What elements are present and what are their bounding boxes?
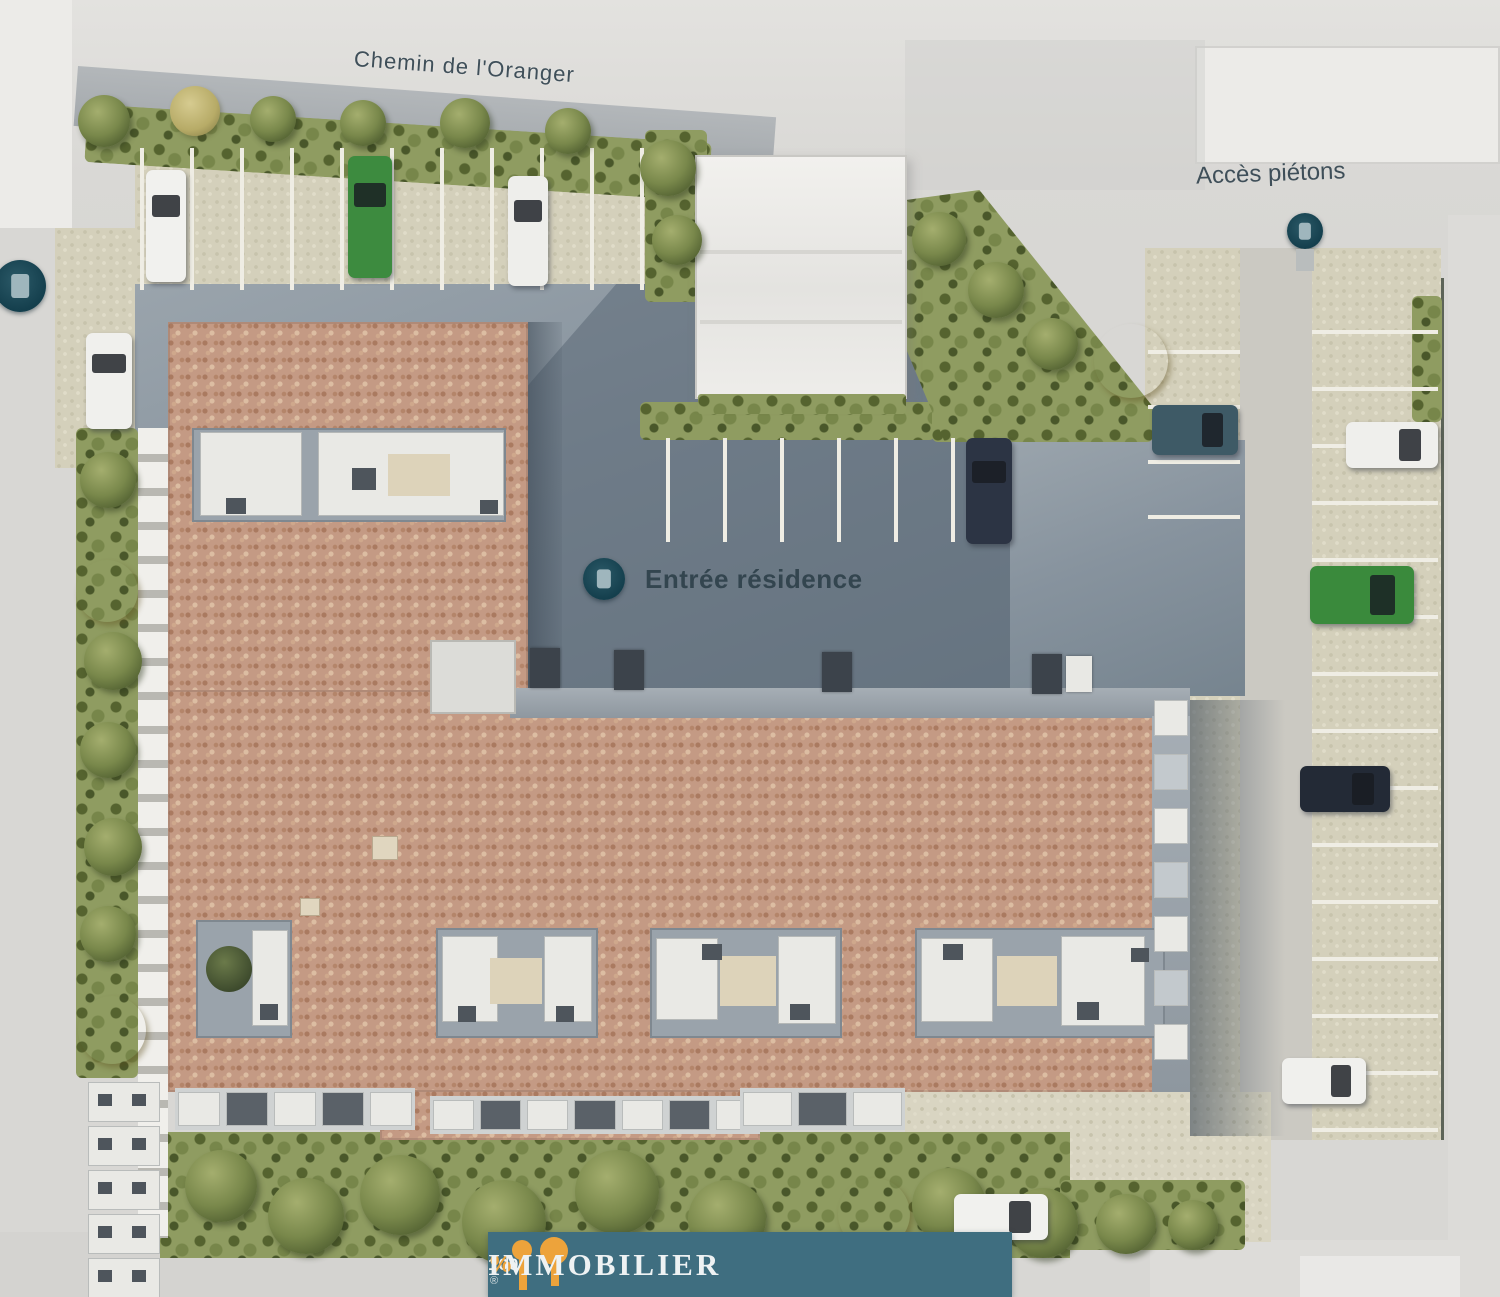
logo-name: IMMOBILIER — [488, 1247, 721, 1283]
green-tree — [1168, 1200, 1218, 1250]
car-green-top — [348, 156, 392, 278]
terrace-door — [132, 1094, 146, 1106]
terrace-door — [98, 1138, 112, 1150]
entrance-door-icon — [11, 274, 29, 298]
green-tree — [84, 632, 142, 690]
stall-line-right — [1312, 1128, 1438, 1132]
stall-line-center — [780, 438, 784, 542]
stall-line-top — [490, 148, 494, 290]
car-green-right — [1310, 566, 1414, 624]
stall-line-right — [1312, 330, 1438, 334]
south-terrace-cell — [622, 1100, 663, 1130]
terrace-door — [132, 1138, 146, 1150]
green-tree — [1026, 318, 1078, 370]
yellow-tree — [76, 560, 138, 622]
stall-line-right — [1312, 558, 1438, 562]
car-windshield — [1370, 575, 1395, 614]
car-windshield — [972, 461, 1005, 482]
car-windshield — [1202, 413, 1223, 447]
context-car-park-bottom-right — [1300, 1256, 1460, 1297]
south-terrace-cell — [322, 1092, 364, 1126]
site-plan-scene: Chemin de l'Oranger Accès piétons Entrée… — [0, 0, 1500, 1297]
terrace-door — [132, 1182, 146, 1194]
pedestrian-path-stub — [1296, 249, 1314, 271]
existing-building-ridge-1 — [700, 250, 902, 254]
green-tree — [440, 98, 490, 148]
north-wing-shadow — [528, 322, 562, 696]
inner-courtyard — [436, 928, 598, 1038]
car-windshield — [1352, 773, 1374, 804]
car-windshield — [1331, 1065, 1351, 1096]
west-terrace-cell — [88, 1082, 160, 1122]
car-white-top-1 — [146, 170, 186, 282]
residence-entrance-label: Entrée résidence — [645, 564, 863, 595]
stall-line-right-inner — [1148, 460, 1240, 464]
south-terrace-cell — [274, 1092, 316, 1126]
courtyard-dark — [702, 944, 722, 960]
pedestrian-access-marker — [1287, 213, 1323, 249]
south-terrace-cell — [527, 1100, 568, 1130]
south-slab-parapet — [510, 688, 1190, 718]
yellow-tree — [1094, 324, 1168, 398]
west-terrace-cell — [88, 1126, 160, 1166]
car-teal-right — [1152, 405, 1238, 455]
stall-line-center — [837, 438, 841, 542]
inner-courtyard — [915, 928, 1165, 1038]
green-tree — [340, 100, 386, 146]
east-balcony-cell — [1154, 1024, 1188, 1060]
terrace-door — [98, 1094, 112, 1106]
south-terrace-cell — [370, 1092, 412, 1126]
stall-line-center — [951, 438, 955, 542]
car-navy-center — [966, 438, 1012, 544]
yellow-tree — [78, 996, 146, 1064]
stall-line-top — [240, 148, 244, 290]
pedestrian-access-label: Accès piétons — [1196, 157, 1346, 190]
entrance-door-icon — [597, 569, 611, 588]
green-tree — [84, 818, 142, 876]
east-balcony-cell — [1154, 916, 1188, 952]
green-tree — [185, 1150, 257, 1222]
stall-line-right — [1312, 900, 1438, 904]
green-tree — [78, 95, 130, 147]
car-white-left — [86, 333, 132, 429]
car-white-right-top — [1346, 422, 1438, 468]
courtyard-dark — [556, 1006, 574, 1022]
terrace-door — [132, 1226, 146, 1238]
courtyard-dark — [260, 1004, 278, 1020]
stall-line-top — [590, 148, 594, 290]
courtyard-beige — [997, 956, 1057, 1006]
context-building-top-left — [0, 0, 72, 228]
inner-courtyard — [196, 920, 292, 1038]
stall-line-right — [1312, 1014, 1438, 1018]
roof-vent — [300, 898, 320, 916]
south-terrace-cell — [669, 1100, 710, 1130]
car-windshield — [92, 354, 125, 373]
terrace-door — [98, 1270, 112, 1282]
terrace-door — [98, 1182, 112, 1194]
east-balcony-cell — [1154, 754, 1188, 790]
stall-line-right — [1312, 843, 1438, 847]
courtyard-dark — [226, 498, 246, 514]
terrace-door — [98, 1226, 112, 1238]
green-tree — [80, 906, 136, 962]
courtyard-white — [200, 432, 302, 516]
green-tree — [80, 452, 136, 508]
courtyard-beige — [388, 454, 450, 496]
logo-registered-mark: ® — [490, 1275, 498, 1297]
west-terrace-cell — [88, 1258, 160, 1297]
car-windshield — [354, 183, 386, 207]
stall-line-top — [190, 148, 194, 290]
garage-door — [530, 648, 560, 688]
green-tree — [545, 108, 591, 154]
west-terrace-cell — [88, 1170, 160, 1210]
south-terrace-strip — [740, 1088, 905, 1130]
green-tree — [360, 1155, 440, 1235]
south-terrace-strip — [175, 1088, 415, 1130]
east-balcony-cell — [1154, 808, 1188, 844]
stall-line-top — [290, 148, 294, 290]
garage-door — [822, 652, 852, 692]
hedge-right-top — [1412, 296, 1442, 422]
stall-line-center — [723, 438, 727, 542]
green-tree — [170, 86, 220, 136]
car-dark-right — [1300, 766, 1390, 812]
car-windshield — [152, 195, 181, 217]
green-tree — [250, 96, 296, 142]
stall-line-center — [666, 438, 670, 542]
existing-building-ridge-2 — [700, 320, 902, 324]
garage-door — [1032, 654, 1062, 694]
stall-line-right — [1312, 672, 1438, 676]
south-terrace-cell — [798, 1092, 847, 1126]
stall-line-right — [1312, 387, 1438, 391]
car-windshield — [1009, 1201, 1032, 1232]
green-tree — [968, 262, 1024, 318]
entrance-door-icon — [1299, 223, 1311, 240]
context-road-top-right — [905, 40, 1205, 190]
south-terrace-cell — [480, 1100, 521, 1130]
south-terrace-cell — [574, 1100, 615, 1130]
east-balcony-cell — [1154, 862, 1188, 898]
stall-line-right-inner — [1148, 515, 1240, 519]
right-sidewalk — [1448, 215, 1500, 1297]
inner-courtyard — [192, 428, 506, 522]
stall-line-top — [140, 148, 144, 290]
south-terrace-strip — [430, 1096, 760, 1134]
car-windshield — [1399, 429, 1421, 460]
garage-door — [1066, 656, 1092, 692]
stall-line-center — [894, 438, 898, 542]
south-terrace-cell — [178, 1092, 220, 1126]
car-windshield — [514, 200, 543, 222]
courtyard-dark — [352, 468, 376, 490]
existing-building-hedge — [698, 394, 906, 414]
south-terrace-cell — [433, 1100, 474, 1130]
terrace-door — [132, 1270, 146, 1282]
stall-line-top — [340, 148, 344, 290]
inner-courtyard — [650, 928, 842, 1038]
green-tree — [912, 212, 966, 266]
south-terrace-cell — [226, 1092, 268, 1126]
courtyard-tree — [206, 946, 252, 992]
car-white-top-2 — [508, 176, 548, 286]
courtyard-dark — [480, 500, 498, 514]
courtyard-dark — [1131, 948, 1149, 962]
courtyard-dark — [790, 1004, 810, 1020]
stall-line-right — [1312, 729, 1438, 733]
building-shadow-east — [1190, 700, 1285, 1136]
roof-vent — [372, 836, 398, 860]
courtyard-beige — [490, 958, 542, 1004]
car-white-right-bottom — [1282, 1058, 1366, 1104]
green-tree — [652, 215, 702, 265]
courtyard-dark — [943, 944, 963, 960]
residence-entrance-marker — [583, 558, 625, 600]
east-balcony-cell — [1154, 970, 1188, 1006]
stall-line-right — [1312, 501, 1438, 505]
green-tree — [575, 1150, 659, 1234]
green-tree — [80, 722, 136, 778]
existing-building — [695, 155, 907, 399]
green-tree — [1096, 1194, 1156, 1254]
west-terrace-cell — [88, 1214, 160, 1254]
site-entrance-marker-left — [0, 260, 46, 312]
courtyard-beige — [720, 956, 776, 1006]
courtyard-dark — [458, 1006, 476, 1022]
developer-logo-banner: 100 % IMMOBILIER ® — [488, 1232, 1012, 1297]
stall-line-right — [1312, 957, 1438, 961]
south-terrace-cell — [743, 1092, 792, 1126]
south-terrace-cell — [853, 1092, 902, 1126]
stall-line-top — [440, 148, 444, 290]
context-building-top-right — [1195, 46, 1500, 164]
east-balcony-cell — [1154, 700, 1188, 736]
courtyard-dark — [1077, 1002, 1099, 1020]
green-tree — [268, 1178, 344, 1254]
garage-door — [614, 650, 644, 690]
wing-roof-terrace — [430, 640, 516, 714]
green-tree — [640, 140, 696, 196]
